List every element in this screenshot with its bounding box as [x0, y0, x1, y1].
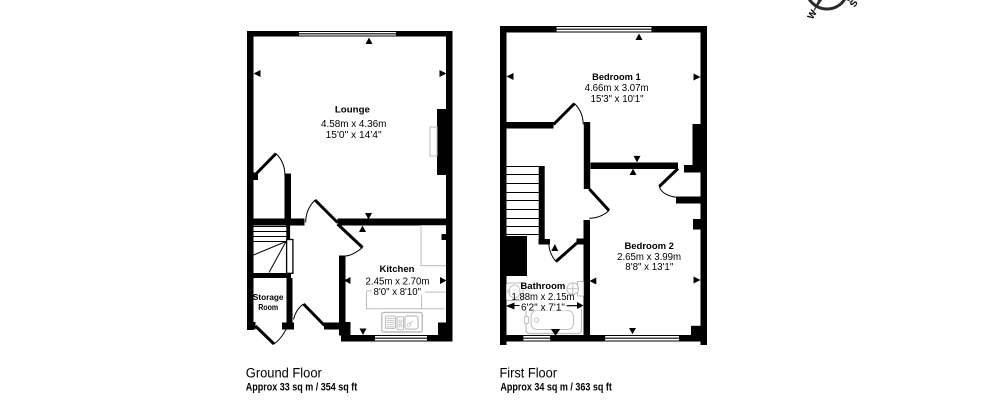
- svg-text:Approx 34 sq m / 363 sq ft: Approx 34 sq m / 363 sq ft: [500, 381, 612, 393]
- svg-text:4.58m x 4.36m: 4.58m x 4.36m: [321, 119, 387, 130]
- svg-text:W: W: [806, 8, 820, 21]
- svg-text:Bathroom: Bathroom: [520, 281, 565, 292]
- svg-text:S: S: [848, 0, 861, 9]
- svg-text:8'8" x 13'1": 8'8" x 13'1": [625, 262, 673, 273]
- svg-text:Bedroom 2: Bedroom 2: [624, 241, 674, 252]
- svg-text:Storage: Storage: [253, 293, 284, 302]
- svg-text:Bedroom 1: Bedroom 1: [592, 72, 641, 83]
- svg-text:Kitchen: Kitchen: [380, 264, 415, 275]
- svg-text:15'3" x 10'1": 15'3" x 10'1": [591, 94, 644, 105]
- svg-text:First Floor: First Floor: [500, 365, 558, 381]
- svg-text:15'0" x 14'4": 15'0" x 14'4": [326, 130, 382, 141]
- svg-text:6'2" x 7'1": 6'2" x 7'1": [521, 302, 565, 313]
- svg-text:Room: Room: [258, 303, 278, 312]
- svg-text:4.66m x 3.07m: 4.66m x 3.07m: [585, 83, 649, 94]
- svg-text:8'0" x 8'10": 8'0" x 8'10": [374, 287, 422, 298]
- svg-text:2.45m x 2.70m: 2.45m x 2.70m: [366, 276, 430, 287]
- svg-text:Lounge: Lounge: [335, 105, 370, 116]
- svg-text:Ground Floor: Ground Floor: [246, 365, 322, 381]
- svg-text:Approx 33 sq m / 354 sq ft: Approx 33 sq m / 354 sq ft: [246, 381, 358, 393]
